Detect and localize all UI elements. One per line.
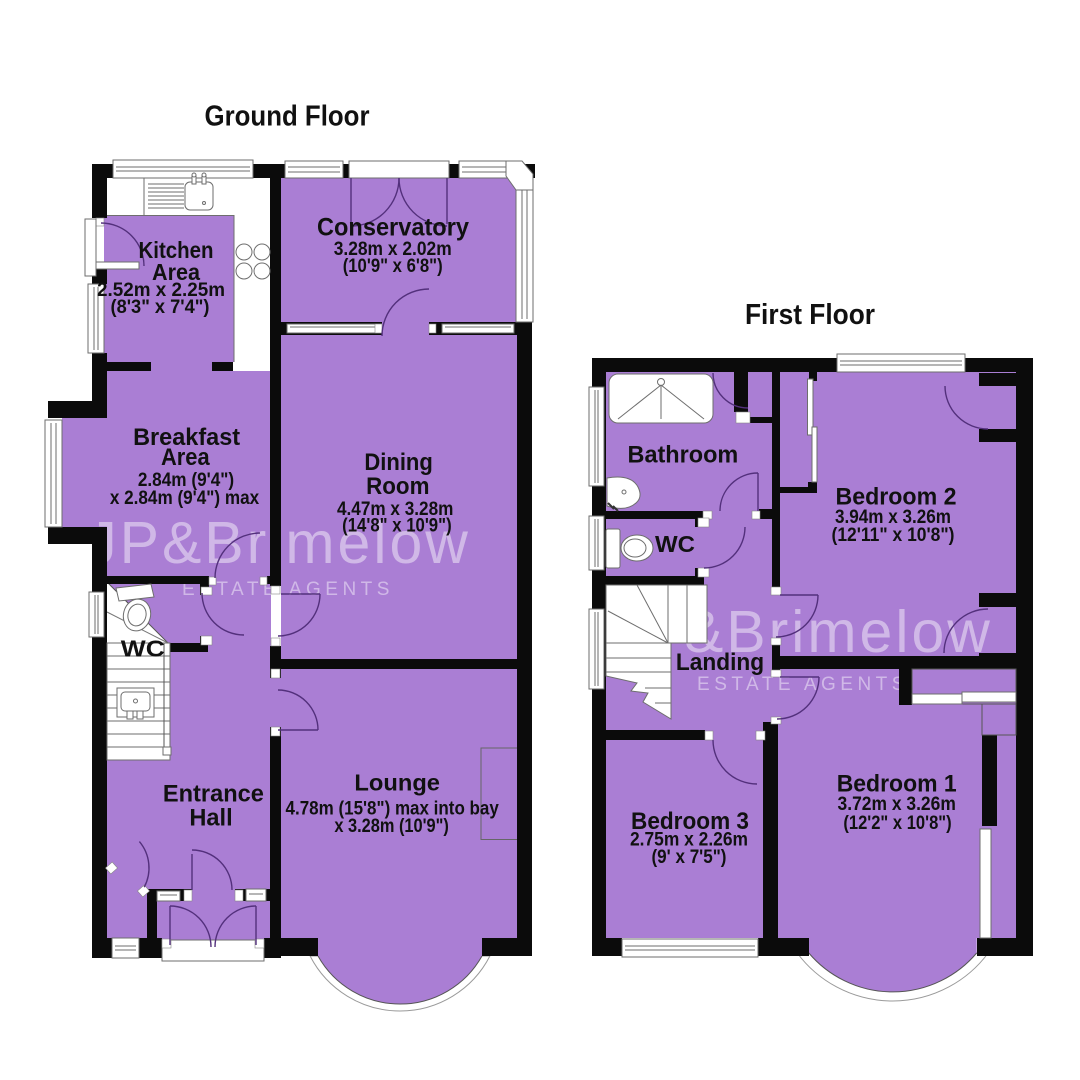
svg-text:x 2.84m (9'4") max: x 2.84m (9'4") max (110, 488, 260, 509)
svg-text:Landing: Landing (676, 649, 764, 676)
svg-text:(12'2" x 10'8"): (12'2" x 10'8") (843, 813, 951, 834)
svg-text:3.72m x 3.26m: 3.72m x 3.26m (838, 794, 956, 815)
svg-text:Bathroom: Bathroom (628, 442, 739, 469)
svg-text:(9' x 7'5"): (9' x 7'5") (652, 847, 727, 868)
svg-text:Lounge: Lounge (354, 770, 440, 796)
svg-text:x 3.28m (10'9"): x 3.28m (10'9") (334, 816, 449, 837)
svg-text:Room: Room (366, 473, 429, 500)
svg-text:(8'3" x 7'4"): (8'3" x 7'4") (111, 297, 210, 318)
svg-text:Area: Area (161, 444, 210, 471)
svg-text:Hall: Hall (189, 805, 232, 832)
svg-text:First Floor: First Floor (745, 299, 875, 331)
svg-text:Entrance: Entrance (163, 781, 264, 808)
svg-text:(14'8" x 10'9"): (14'8" x 10'9") (342, 516, 452, 537)
svg-text:WC: WC (655, 531, 695, 557)
svg-text:(10'9" x 6'8"): (10'9" x 6'8") (343, 255, 443, 277)
svg-text:Ground Floor: Ground Floor (205, 101, 370, 133)
svg-text:(12'11" x 10'8"): (12'11" x 10'8") (832, 525, 955, 546)
svg-text:Dining: Dining (364, 449, 433, 476)
svg-text:WC: WC (121, 636, 165, 662)
